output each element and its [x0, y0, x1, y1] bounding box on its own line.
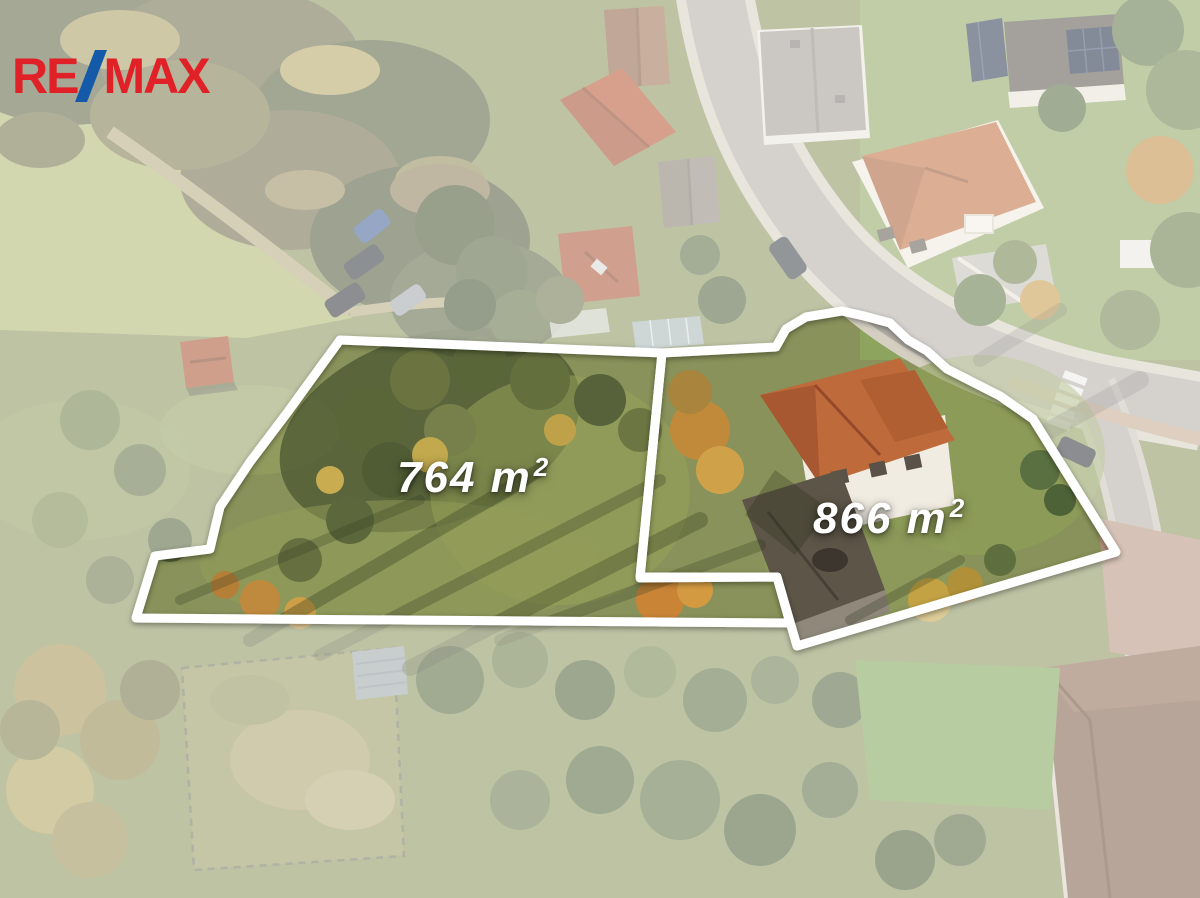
aerial-photo [0, 0, 1200, 898]
remax-logo-max: MAX [103, 51, 208, 101]
plot-area-label-right: 866 m2 [813, 494, 964, 544]
plot-area-superscript: 2 [534, 452, 548, 482]
listing-photo: 764 m2 866 m2 RE MAX [0, 0, 1200, 898]
plot-area-value: 764 m [397, 453, 532, 502]
remax-logo-re: RE [12, 51, 77, 101]
plot-area-superscript: 2 [950, 493, 964, 523]
plot-area-label-left: 764 m2 [397, 453, 548, 503]
plot-area-value: 866 m [813, 494, 948, 543]
remax-logo: RE MAX [12, 50, 209, 102]
